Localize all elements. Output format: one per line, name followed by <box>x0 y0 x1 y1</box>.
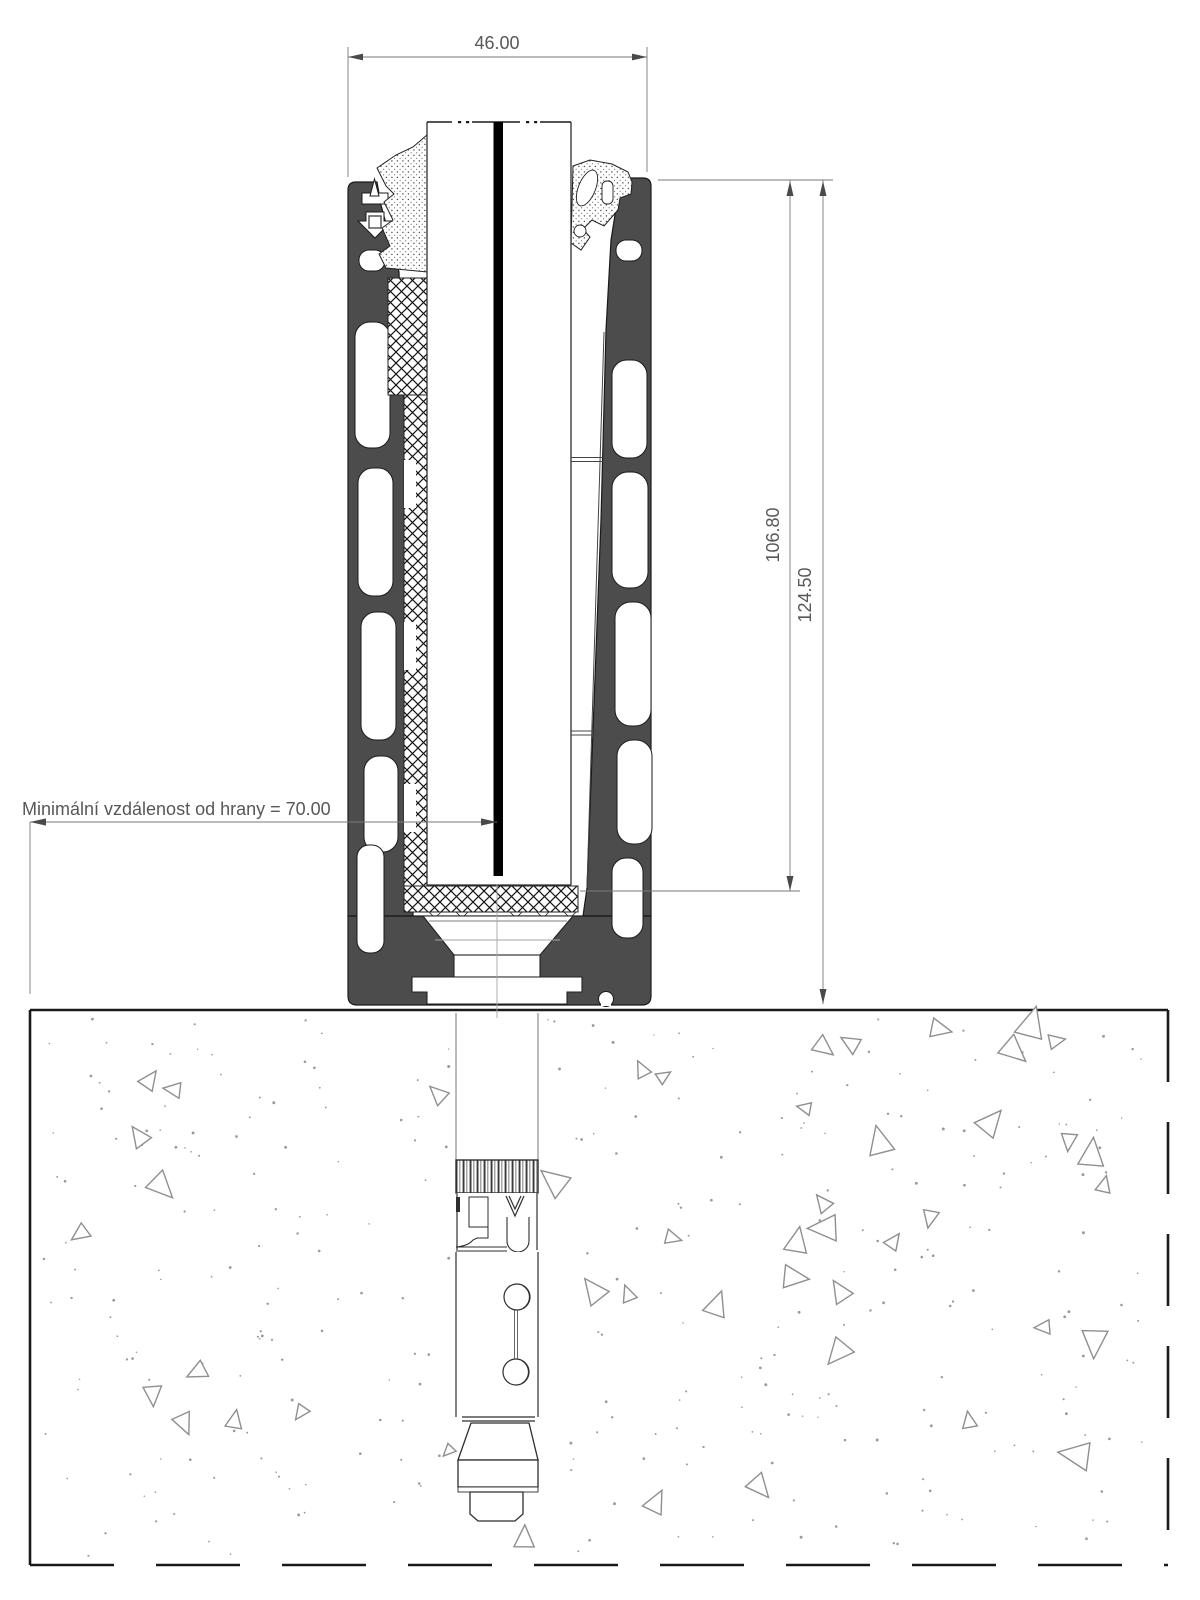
slot-cutout <box>617 740 652 844</box>
keyhole-right <box>616 240 642 261</box>
slot-cutout <box>357 845 384 953</box>
gasket-slot <box>602 181 613 204</box>
slot-cutout <box>612 360 647 458</box>
technical-drawing: 46.00 106.80 124.50 Minimální vzdálenost… <box>0 0 1200 1600</box>
bottom-gasket-strip <box>404 886 578 912</box>
slot-cutout <box>612 858 643 938</box>
expansion-cone <box>458 1423 538 1460</box>
expansion-sleeve <box>456 1193 538 1252</box>
dimension-total-height: 124.50 <box>795 180 827 1004</box>
drawing-canvas: 46.00 106.80 124.50 Minimální vzdálenost… <box>0 0 1200 1600</box>
slot-cutout <box>355 322 390 448</box>
glass-panel <box>427 121 571 885</box>
slot-cutout <box>612 472 648 588</box>
anchor-nut <box>470 1492 523 1521</box>
glass-interlayer <box>494 122 504 876</box>
slot-cutout <box>361 612 396 740</box>
dimension-label: 106.80 <box>763 507 783 562</box>
knurled-collar <box>456 1160 538 1193</box>
slot-cutout <box>358 468 393 596</box>
concrete-texture <box>43 1006 1143 1557</box>
anchor-tip <box>458 1417 538 1521</box>
tip-body <box>458 1460 538 1487</box>
slot-cutout <box>615 602 651 726</box>
top-left-rubber-gasket <box>377 135 427 272</box>
slot-cutout <box>364 756 398 852</box>
side-gasket-head <box>388 278 427 395</box>
edge-distance-note: Minimální vzdálenost od hrany = 70.00 <box>22 799 331 819</box>
anchor-shaft <box>456 1252 538 1417</box>
anchor-bolt <box>456 1013 538 1521</box>
dimension-label: 124.50 <box>795 567 815 622</box>
concrete-slab <box>30 1006 1168 1565</box>
dimension-label: 46.00 <box>474 33 519 53</box>
gasket-hole <box>574 225 586 237</box>
